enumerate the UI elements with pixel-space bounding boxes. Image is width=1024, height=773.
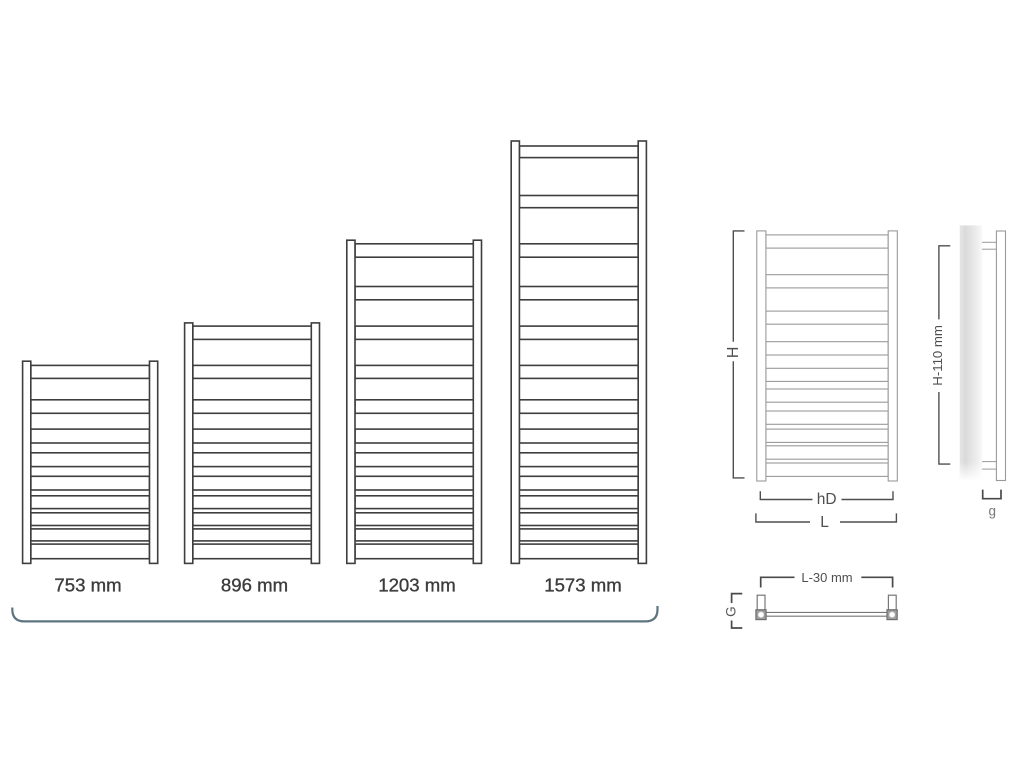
- svg-text:H-110 mm: H-110 mm: [930, 325, 945, 386]
- svg-text:753 mm: 753 mm: [54, 574, 121, 595]
- svg-text:L-30 mm: L-30 mm: [801, 570, 852, 585]
- svg-text:G: G: [723, 606, 738, 617]
- svg-text:1573 mm: 1573 mm: [544, 574, 622, 595]
- svg-text:896 mm: 896 mm: [221, 574, 288, 595]
- svg-text:1203 mm: 1203 mm: [378, 574, 456, 595]
- svg-text:H: H: [725, 347, 742, 359]
- svg-text:hD: hD: [817, 491, 837, 508]
- svg-text:L: L: [820, 514, 829, 531]
- svg-text:g: g: [988, 503, 996, 518]
